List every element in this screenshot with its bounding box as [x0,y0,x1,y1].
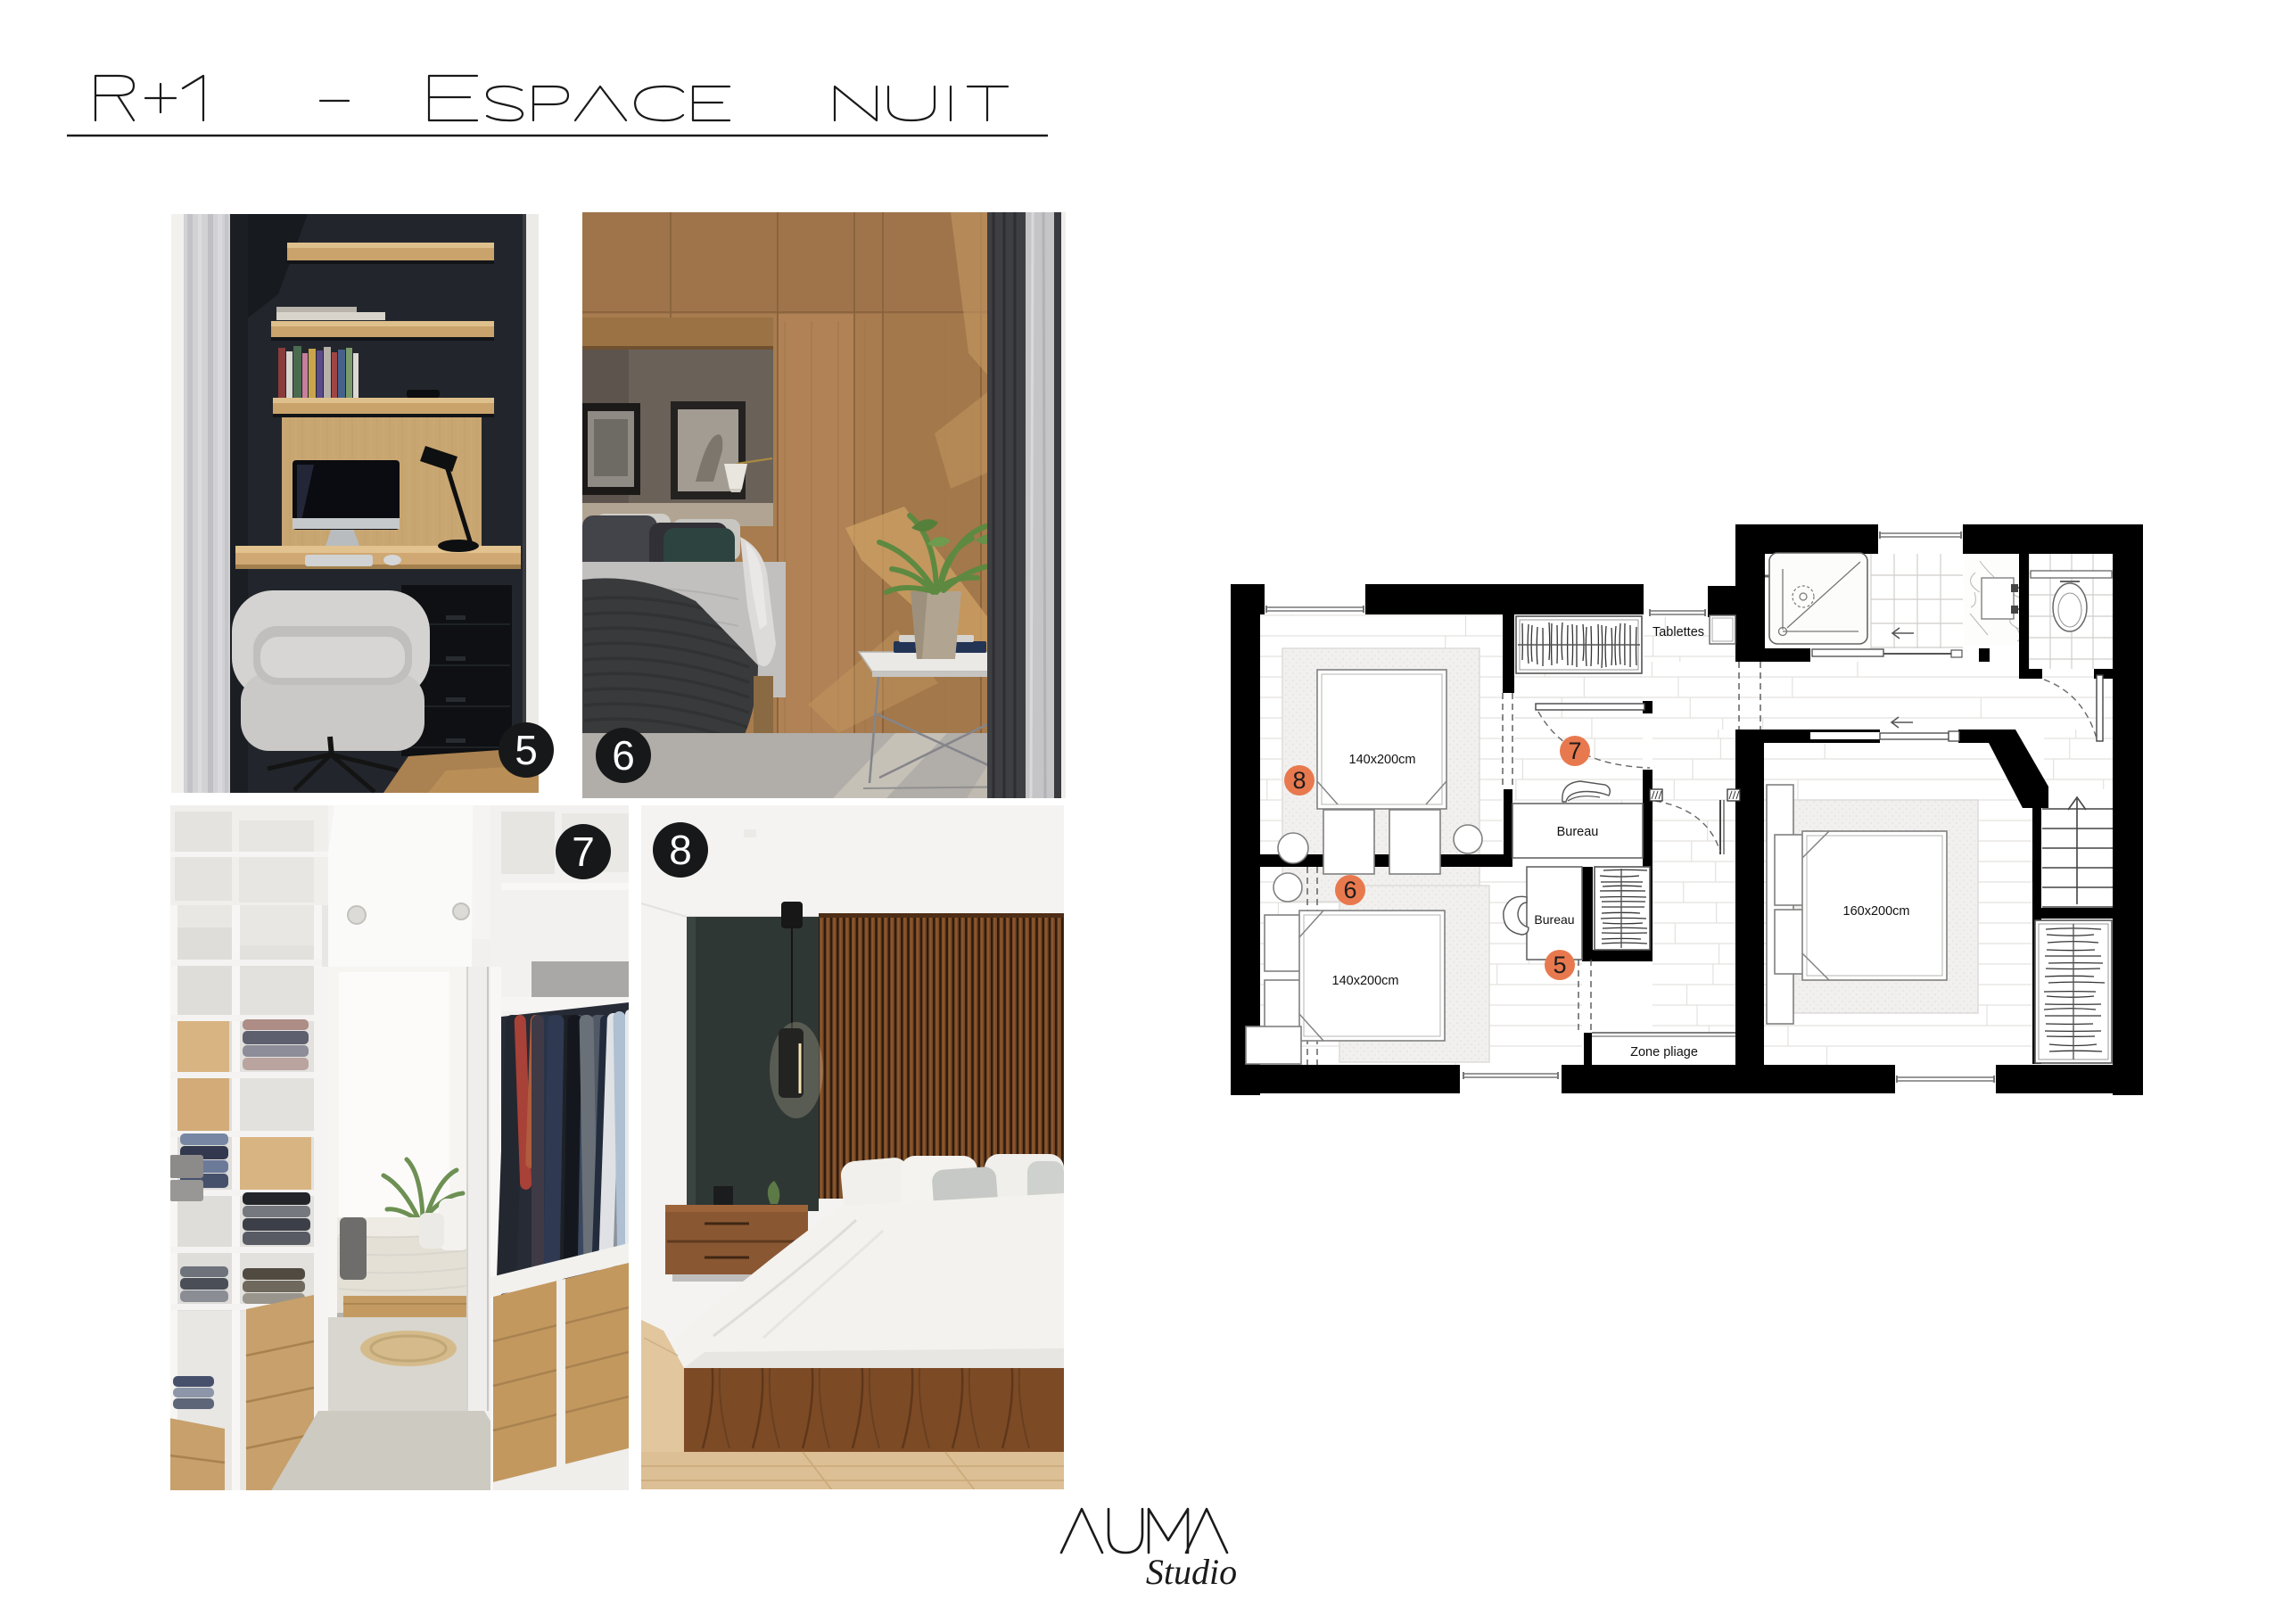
svg-text:Bureau: Bureau [1557,825,1599,839]
svg-text:140x200cm: 140x200cm [1332,974,1399,988]
svg-text:140x200cm: 140x200cm [1349,753,1416,767]
svg-text:Studio: Studio [1146,1552,1237,1592]
svg-text:6: 6 [1343,877,1356,903]
svg-text:7: 7 [572,828,595,875]
svg-text:Zone pliage: Zone pliage [1630,1045,1698,1059]
svg-text:7: 7 [1568,738,1581,764]
svg-text:6: 6 [612,732,635,779]
svg-text:8: 8 [1292,767,1306,794]
svg-text:5: 5 [515,727,538,773]
svg-text:Tablettes: Tablettes [1652,625,1704,639]
svg-text:8: 8 [669,827,692,873]
svg-text:5: 5 [1553,952,1566,978]
svg-text:160x200cm: 160x200cm [1843,904,1910,919]
svg-text:Bureau: Bureau [1534,912,1574,927]
